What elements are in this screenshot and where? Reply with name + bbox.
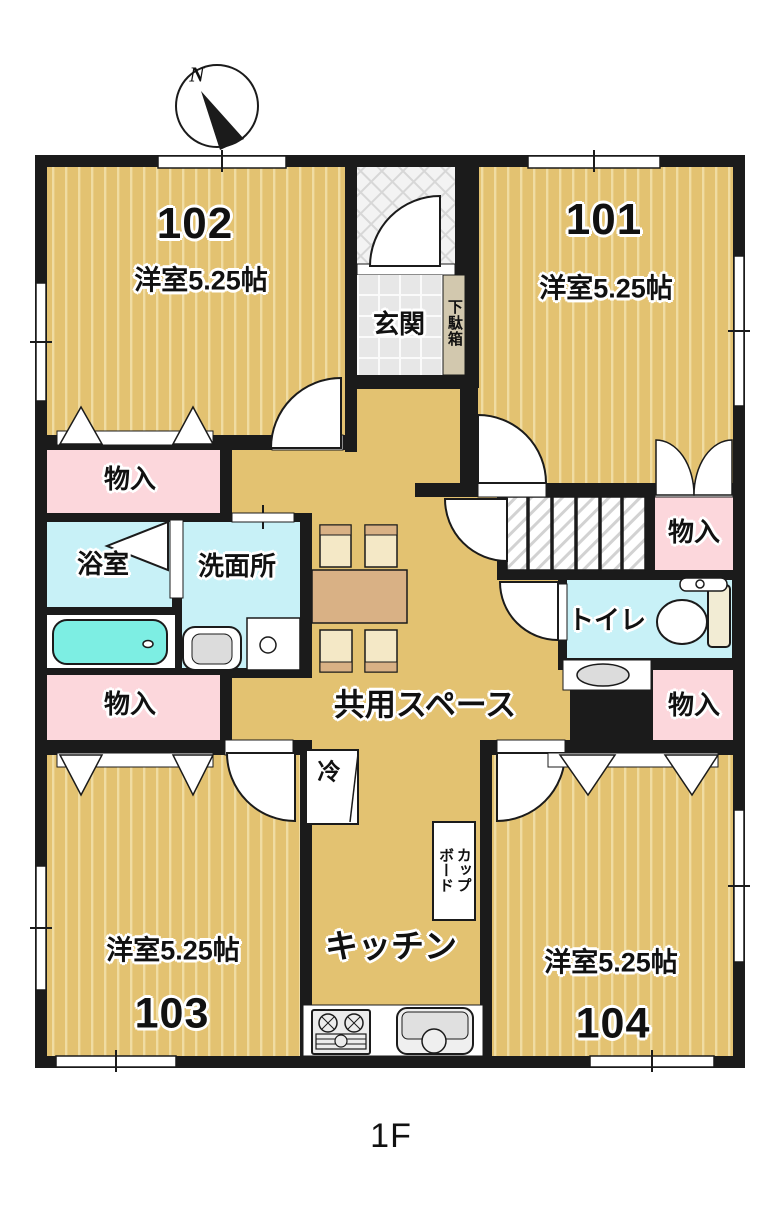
compass-icon <box>176 65 258 150</box>
storage-bottom-right-label: 物入 <box>668 692 720 718</box>
room-101-size: 洋室5.25帖 <box>539 276 673 303</box>
room-102-number: 102 <box>157 202 233 246</box>
kitchen-counter <box>303 1005 483 1056</box>
kitchen-sink <box>397 1008 473 1054</box>
toilet-label: トイレ <box>568 607 646 633</box>
entrance-label: 玄関 <box>373 311 425 337</box>
storage-top-right-label: 物入 <box>668 519 720 545</box>
storage-top-left-label: 物入 <box>104 466 156 492</box>
floor-plan-drawing <box>0 0 780 1205</box>
cupboard-label: カップ ボード <box>437 848 471 893</box>
room-103-number: 103 <box>135 993 210 1036</box>
washbasin <box>183 627 241 670</box>
cupboard-label-line1: カップ <box>455 848 471 893</box>
common-space-label: 共用スペース <box>334 690 516 721</box>
bathroom-label: 浴室 <box>77 551 129 577</box>
compass-north-label: N <box>189 65 204 86</box>
kitchen-label: キッチン <box>325 930 457 963</box>
room-101-number: 101 <box>566 198 642 242</box>
room-103-size: 洋室5.25帖 <box>106 938 240 965</box>
cupboard-label-line2: ボード <box>437 848 453 893</box>
floor-label: 1F <box>370 1119 412 1153</box>
storage-bottom-left-label: 物入 <box>104 691 156 717</box>
bathtub-drain <box>143 641 153 648</box>
washing-machine-pan <box>247 618 300 670</box>
hand-basin <box>563 660 651 690</box>
floor-plan-page: N 102 洋室5.25帖 101 洋室5.25帖 玄関 下駄箱 物入 浴室 洗… <box>0 0 780 1205</box>
dining-table <box>312 570 407 623</box>
staircase <box>507 497 645 570</box>
refrigerator-label: 冷 <box>318 761 341 784</box>
shoe-cabinet-label: 下駄箱 <box>446 299 462 347</box>
room-104-number: 104 <box>576 1003 651 1046</box>
washroom-label: 洗面所 <box>198 553 276 579</box>
room-102-size: 洋室5.25帖 <box>134 268 268 295</box>
gas-stove <box>312 1010 370 1054</box>
room-104-size: 洋室5.25帖 <box>544 950 678 977</box>
